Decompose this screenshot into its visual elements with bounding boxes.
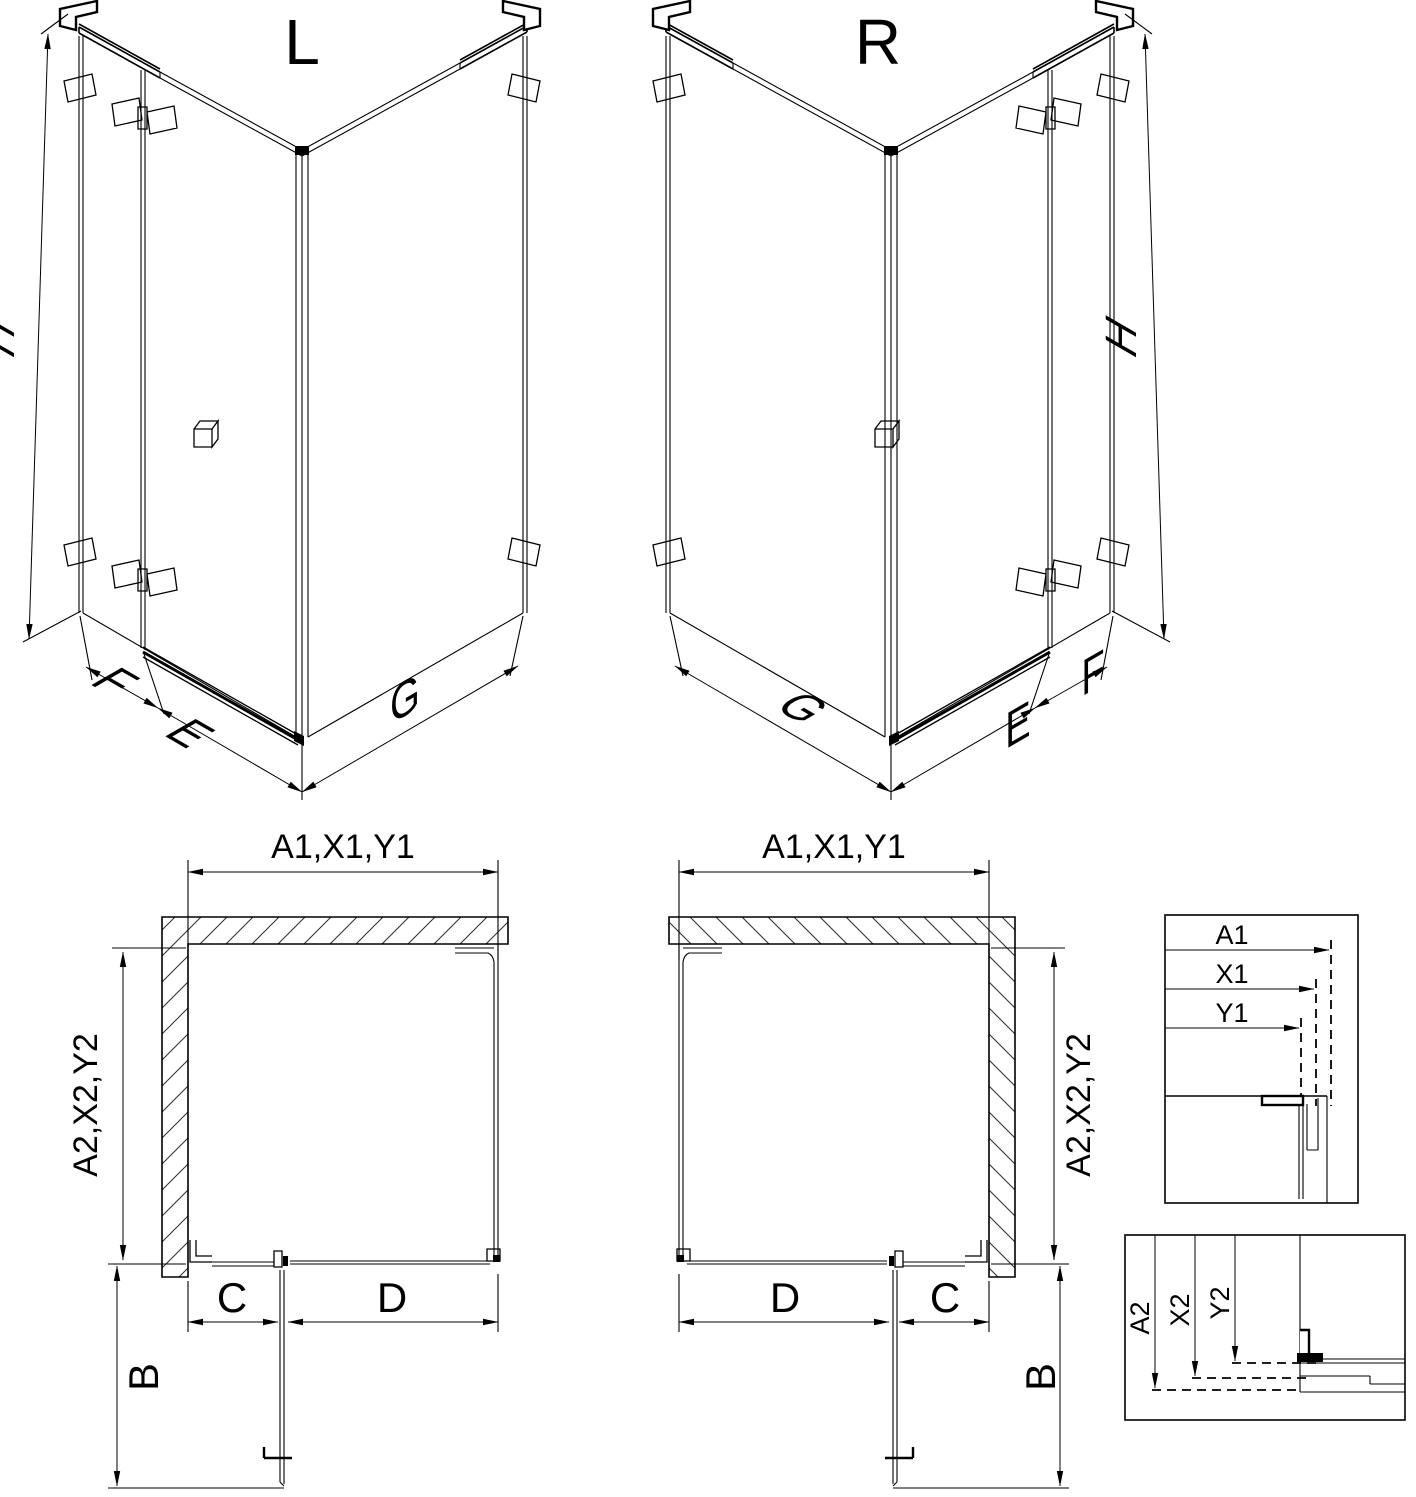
label-fixed-right: C bbox=[930, 1274, 960, 1321]
label-width-right: A1,X1,Y1 bbox=[762, 828, 906, 866]
label-return-left: G bbox=[390, 663, 420, 737]
detail-width-border bbox=[1165, 915, 1358, 1203]
plan-view-left: A1,X1,Y1 A2,X2,Y2 C D B bbox=[67, 828, 508, 1488]
label-fixed-left: C bbox=[217, 1274, 247, 1321]
reference-dashed-lines-width bbox=[1301, 940, 1331, 1106]
detail-label-x2: X2 bbox=[1165, 1293, 1195, 1326]
label-door-right: E bbox=[1005, 690, 1030, 761]
label-swing-left: B bbox=[120, 1363, 167, 1391]
glass-clamp-profile-width bbox=[1262, 1096, 1303, 1105]
label-height-left: H bbox=[0, 307, 24, 367]
detail-box-width: A1 X1 Y1 bbox=[1165, 915, 1358, 1203]
detail-label-a1: A1 bbox=[1215, 920, 1248, 950]
label-side-right: F bbox=[1081, 638, 1104, 708]
view-title-right: R bbox=[855, 6, 901, 78]
label-door-left: E bbox=[152, 712, 226, 755]
view-title-left: L bbox=[284, 6, 320, 78]
detail-box-depth: A2 X2 Y2 bbox=[1125, 1235, 1405, 1420]
iso-view-left: L H F E G bbox=[0, 1, 540, 800]
label-height-right: H bbox=[1097, 307, 1146, 367]
reference-dashed-lines-depth bbox=[1152, 1363, 1320, 1390]
label-opening-left: D bbox=[377, 1274, 407, 1321]
label-swing-right: B bbox=[1017, 1363, 1064, 1391]
label-opening-right: D bbox=[770, 1274, 800, 1321]
detail-label-x1: X1 bbox=[1215, 959, 1248, 989]
detail-label-y1: Y1 bbox=[1215, 998, 1248, 1028]
label-depth-right: A2,X2,Y2 bbox=[1060, 1033, 1098, 1177]
wall-glass-profile-width bbox=[1299, 1096, 1327, 1203]
label-depth-left: A2,X2,Y2 bbox=[67, 1033, 105, 1177]
clamp-bar-depth bbox=[1297, 1353, 1323, 1362]
glass-clamp-profile-depth bbox=[1300, 1330, 1309, 1356]
drawing-canvas: L H F E G R H G E F A1,X1,Y1 A2,X2,Y2 C … bbox=[0, 0, 1416, 1497]
wall-glass-profile-depth bbox=[1300, 1235, 1405, 1392]
shower-enclosure-technical-drawing: L H F E G R H G E F A1,X1,Y1 A2,X2,Y2 C … bbox=[0, 0, 1416, 1497]
label-width-left: A1,X1,Y1 bbox=[271, 828, 415, 866]
detail-label-y2: Y2 bbox=[1205, 1286, 1235, 1319]
label-return-right: G bbox=[763, 685, 842, 730]
iso-view-right: R H G E F bbox=[653, 1, 1170, 800]
detail-label-a2: A2 bbox=[1125, 1301, 1155, 1334]
plan-view-right: A1,X1,Y1 A2,X2,Y2 C D B bbox=[669, 828, 1098, 1488]
